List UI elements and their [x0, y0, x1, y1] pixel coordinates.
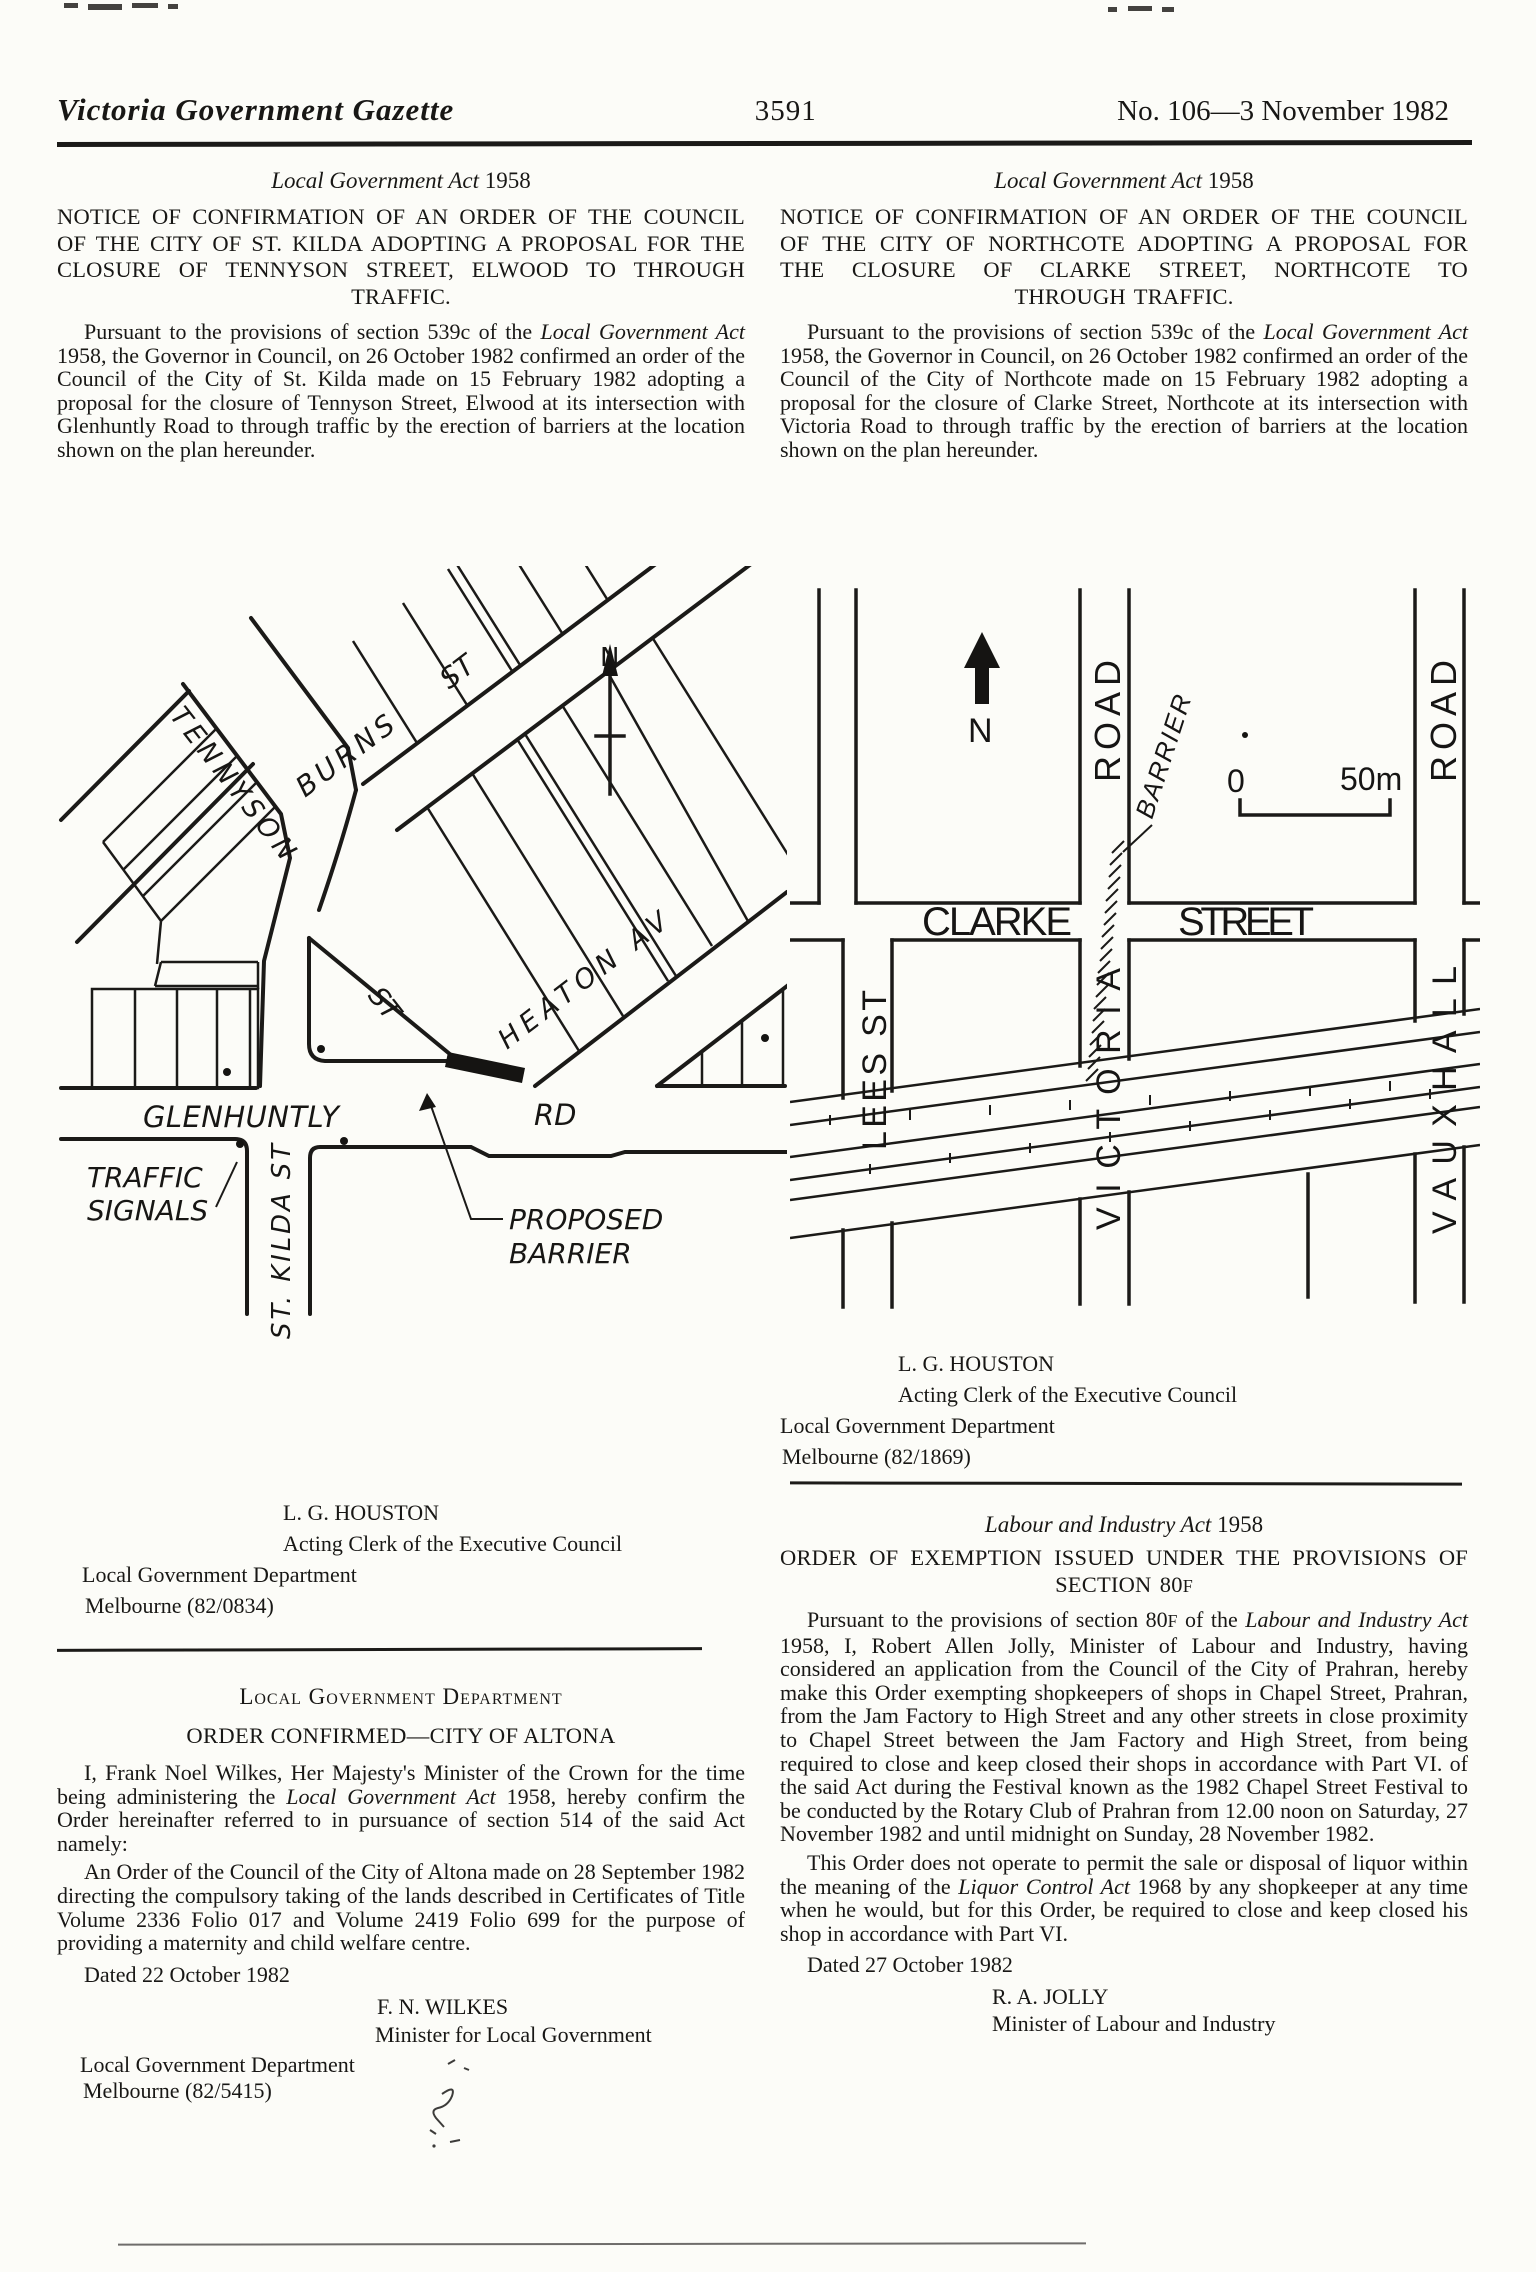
notice-heading-northcote: NOTICE OF CONFIRMATION OF AN ORDER OF TH…	[780, 204, 1468, 310]
street-label-heaton-av: HEATON AV	[492, 905, 676, 1056]
page-number: 3591	[755, 95, 817, 128]
scan-artifact	[64, 3, 78, 8]
act-name: Labour and Industry Act	[985, 1512, 1211, 1537]
signatory-name: R. A. JOLLY	[780, 1983, 1468, 2010]
gazette-title: Victoria Government Gazette	[57, 92, 454, 128]
para-text: Pursuant to the provisions of section 53…	[84, 319, 541, 344]
map-labels: ROAD BARRIER ROAD CLARKE STREET LEES ST …	[856, 660, 1464, 1234]
para-text: 1958, I, Robert Allen Jolly, Minister of…	[780, 1633, 1468, 1847]
scan-artifact	[1162, 7, 1174, 12]
signatory-dept: Local Government Department	[57, 1559, 745, 1590]
north-arrow-icon: N	[964, 632, 1000, 750]
st-kilda-map: N TENNYSON ST BURNS ST HEATON AV GLENHUN…	[57, 566, 787, 1366]
para-act-italic: Local Government Act	[286, 1784, 495, 1809]
act-year: 1958	[1202, 168, 1254, 193]
proposed-barrier-bar	[445, 1052, 525, 1083]
scan-artifact	[168, 4, 178, 9]
para-text: Pursuant to the provisions of section 80	[807, 1607, 1168, 1632]
notice-heading-stkilda: NOTICE OF CONFIRMATION OF AN ORDER OF TH…	[57, 204, 745, 310]
para-act-italic: Local Government Act	[1264, 319, 1469, 344]
street-label-rd: RD	[534, 1098, 576, 1132]
masthead: Victoria Government Gazette 3591 No. 106…	[57, 92, 1449, 128]
act-title-labour: Labour and Industry Act 1958	[780, 1512, 1468, 1538]
signatory-dept: Local Government Department	[780, 1410, 1468, 1441]
notice-paragraph-stkilda: Pursuant to the provisions of section 53…	[57, 320, 745, 462]
street-label-victoria: VICTORIA	[1090, 968, 1128, 1230]
section-divider	[790, 1481, 1462, 1485]
proposed-barrier-label-2: BARRIER	[509, 1237, 632, 1270]
para-act-italic: Labour and Industry Act	[1245, 1607, 1468, 1632]
street-label-lees: LEES ST	[856, 990, 894, 1150]
labour-paragraph-1: Pursuant to the provisions of section 80…	[780, 1608, 1468, 1846]
section-divider	[57, 1647, 702, 1652]
stray-dot	[1242, 732, 1248, 738]
scale-zero: 0	[1227, 763, 1245, 799]
signatory-name: L. G. HOUSTON	[780, 1348, 1468, 1379]
act-name: Local Government Act	[271, 168, 479, 193]
act-name: Local Government Act	[994, 168, 1202, 193]
map-labels: TENNYSON ST BURNS ST HEATON AV GLENHUNTL…	[87, 647, 676, 1339]
street-lines	[790, 590, 1480, 1307]
altona-order-section: Local Government Department ORDER CONFIR…	[57, 1684, 745, 2104]
traffic-signals-label-2: SIGNALS	[87, 1194, 208, 1227]
scan-artifact	[1128, 6, 1152, 11]
issue-number: No. 106—3 November 1982	[1117, 95, 1449, 128]
barrier-label: BARRIER	[1129, 691, 1197, 822]
signature-block-northcote: L. G. HOUSTON Acting Clerk of the Execut…	[780, 1348, 1468, 1472]
masthead-rule	[57, 140, 1472, 147]
act-year: 1958	[1211, 1512, 1263, 1537]
scan-artifact	[88, 4, 122, 10]
proposed-barrier-label-1: PROPOSED	[509, 1203, 663, 1236]
dept-heading: Local Government Department	[57, 1684, 745, 1710]
street-label-clarke: CLARKE	[922, 900, 1072, 944]
exemption-heading: ORDER OF EXEMPTION ISSUED UNDER THE PROV…	[780, 1545, 1468, 1599]
signatory-ref: Melbourne (82/5415)	[57, 2078, 745, 2104]
para-text: 1958, the Governor in Council, on 26 Oct…	[780, 343, 1468, 462]
pen-scribble	[430, 2060, 469, 2148]
labour-paragraph-2: This Order does not operate to permit th…	[780, 1851, 1468, 1945]
street-label-burns-st: ST	[433, 647, 482, 695]
road-label-victoria-top: ROAD	[1087, 660, 1128, 782]
scale-fifty: 50m	[1340, 761, 1402, 797]
altona-paragraph-2: An Order of the Council of the City of A…	[57, 1860, 745, 1954]
road-label-vauxhall-top: ROAD	[1423, 660, 1464, 782]
street-label-street: STREET	[1178, 900, 1314, 944]
street-label-glenhuntly: GLENHUNTLY	[143, 1100, 341, 1134]
para-text: 1958, the Governor in Council, on 26 Oct…	[57, 343, 745, 462]
signatory-name: F. N. WILKES	[57, 1991, 745, 2022]
north-label: N	[600, 643, 619, 673]
street-label-vauxhall: VAUXHALL	[1426, 966, 1464, 1234]
act-year: 1958	[479, 168, 531, 193]
signatory-title: Acting Clerk of the Executive Council	[57, 1528, 745, 1559]
para-text: of the	[1177, 1607, 1245, 1632]
street-label-burns: BURNS	[289, 708, 401, 804]
signatory-dept: Local Government Department	[57, 2052, 745, 2078]
signatory-title: Minister of Labour and Industry	[780, 2010, 1468, 2037]
labour-order-section: Labour and Industry Act 1958 ORDER OF EX…	[780, 1512, 1468, 2037]
north-arrow-icon: N	[596, 643, 624, 794]
order-heading: ORDER CONFIRMED—CITY OF ALTONA	[57, 1723, 745, 1749]
notice-paragraph-northcote: Pursuant to the provisions of section 53…	[780, 320, 1468, 462]
north-label: N	[968, 712, 993, 750]
scale-bar: 0 50m	[1227, 761, 1402, 815]
heading-smallcap: F	[1183, 1576, 1193, 1596]
signatory-title: Acting Clerk of the Executive Council	[780, 1379, 1468, 1410]
para-smallcap: F	[1168, 1611, 1178, 1631]
heading-text: ORDER OF EXEMPTION ISSUED UNDER THE PROV…	[780, 1545, 1468, 1597]
dated-line: Dated 22 October 1982	[57, 1963, 745, 1987]
scan-artifact	[118, 2242, 1086, 2245]
signature-block-stkilda: L. G. HOUSTON Acting Clerk of the Execut…	[57, 1497, 745, 1621]
signatory-title: Minister for Local Government	[57, 2022, 745, 2048]
signatory-name: L. G. HOUSTON	[57, 1497, 745, 1528]
para-act-italic: Liquor Control Act	[958, 1874, 1130, 1899]
signatory-ref: Melbourne (82/0834)	[57, 1590, 745, 1621]
act-title-northcote: Local Government Act 1958	[780, 168, 1468, 194]
scan-artifact	[132, 3, 158, 8]
signatory-ref: Melbourne (82/1869)	[780, 1441, 1468, 1472]
scan-artifact	[1108, 7, 1117, 12]
lot-lines	[92, 566, 787, 1088]
para-text: Pursuant to the provisions of section 53…	[807, 319, 1264, 344]
handwritten-mark	[418, 2056, 488, 2151]
altona-paragraph-1: I, Frank Noel Wilkes, Her Majesty's Mini…	[57, 1761, 745, 1855]
northcote-map: N 0 50m ROAD BARRIER ROAD CLARKE STREET …	[790, 582, 1480, 1332]
street-label-st-kilda: ST. KILDA ST	[267, 1142, 297, 1339]
dated-line: Dated 27 October 1982	[780, 1953, 1468, 1977]
para-act-italic: Local Government Act	[541, 319, 746, 344]
act-title-stkilda: Local Government Act 1958	[57, 168, 745, 194]
traffic-signals-label-1: TRAFFIC	[87, 1161, 203, 1194]
